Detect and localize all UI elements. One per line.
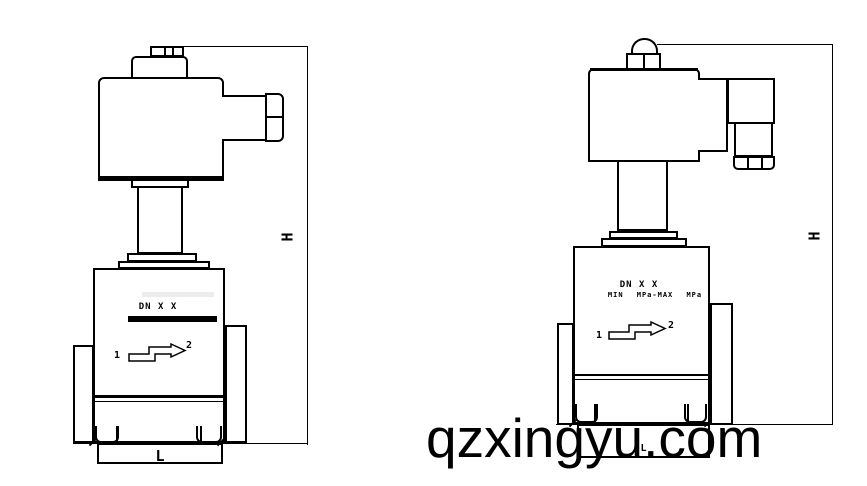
port-nut-left-face [116, 426, 118, 443]
solenoid-coil [98, 77, 224, 178]
flange-step [131, 181, 189, 188]
port-2-label: 2 [668, 320, 675, 331]
port-nut-right-face [200, 426, 202, 443]
armature-tube [137, 188, 183, 254]
dn-label: DN X X [120, 302, 196, 312]
dim-label-h-left: H [283, 228, 292, 246]
dim-label-h-right: H [810, 227, 819, 245]
endcap-divider [266, 116, 283, 118]
dome-cap [631, 38, 658, 54]
flow-arrow-icon [608, 318, 668, 341]
length-dim-box-left: L [97, 443, 223, 464]
faint-marking [142, 292, 214, 297]
port-2-label: 2 [186, 340, 193, 351]
technical-drawing-canvas: H DN X X 1 2 [0, 0, 867, 486]
nameplate-bar [128, 316, 217, 322]
body-lower-line [575, 374, 708, 376]
watermark-text: qzxingyu.com [426, 411, 762, 466]
flow-arrow-icon [128, 340, 188, 363]
gland-divider [747, 156, 749, 170]
coil-connector-stub [698, 78, 728, 152]
dn-label: DN X X [601, 280, 677, 290]
dim-line-h-top-right [657, 44, 833, 45]
coil-top-cap [131, 56, 188, 79]
armature-tube [617, 162, 668, 231]
port-1-label: 1 [114, 350, 121, 361]
coil-top-band [590, 68, 698, 71]
cable-gland-nut [733, 156, 775, 170]
coil-connector-stub [222, 95, 267, 141]
mounting-tab-right [225, 325, 247, 443]
dim-label-h-right-text: H [806, 231, 824, 240]
port-1-label: 1 [596, 330, 603, 341]
pressure-label: MIN MPa-MAX MPa [596, 291, 714, 299]
gland-divider [761, 156, 763, 170]
mounting-tab-left [73, 345, 94, 443]
body-lower-divider [95, 395, 223, 398]
dim-label-l-left: L [155, 447, 164, 465]
din-connector-lower [734, 122, 773, 157]
body-lower-line [95, 401, 223, 402]
dim-label-h-left-text: H [279, 232, 297, 241]
dim-line-h-vertical-left [307, 46, 308, 445]
solenoid-coil [588, 68, 700, 162]
din-connector-box [727, 78, 775, 124]
dim-line-h-vertical-right [832, 44, 833, 425]
body-lower-line-2 [575, 379, 708, 380]
